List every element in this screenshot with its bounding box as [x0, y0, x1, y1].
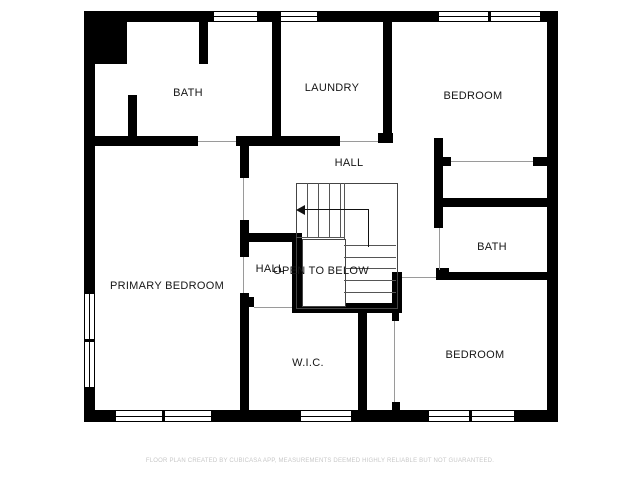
room-label-bath-2: BATH [477, 241, 507, 253]
wall-bath1-right-upper [199, 22, 208, 64]
door-line-laundry [340, 141, 378, 142]
stair-walk-line [303, 209, 368, 210]
door-line-primary-lower [243, 257, 244, 293]
wall-laundry-left [272, 22, 281, 146]
wall-closet-right [533, 157, 547, 166]
window-divider [488, 11, 491, 22]
room-label-primary-bedroom: PRIMARY BEDROOM [110, 280, 224, 292]
room-label-wic: W.I.C. [292, 357, 324, 369]
door-line-bedroom2 [402, 277, 436, 278]
room-label-laundry: LAUNDRY [305, 82, 359, 94]
window-divider [162, 410, 165, 422]
window [280, 11, 318, 22]
stair-tread [344, 257, 396, 258]
disclaimer-text: FLOOR PLAN CREATED BY CUBICASA APP, MEAS… [146, 458, 494, 464]
stair-tread [344, 280, 396, 281]
corner-block [84, 11, 127, 64]
room-label-bedroom-2: BEDROOM [446, 349, 505, 361]
stair-tread [329, 183, 330, 237]
wall-bath2-bottom [436, 272, 547, 280]
wall-bath1-south [84, 136, 198, 146]
stair-tread [340, 183, 341, 237]
stair-landing-edge [296, 237, 344, 238]
window-divider [469, 410, 472, 422]
wall-primary-branch [240, 233, 300, 242]
wall-wic-right [358, 305, 367, 417]
stair-tread [307, 183, 308, 237]
door-line-bath2 [439, 228, 440, 270]
window [300, 410, 352, 422]
wall-bath2-top [443, 198, 547, 207]
room-label-hall-upper: HALL [335, 157, 364, 169]
wall-bedroom2-jamb-bot [392, 402, 400, 412]
window-divider [84, 339, 95, 342]
door-line-bedroom1-closet [451, 161, 533, 162]
wall-hall-north [236, 136, 340, 146]
room-label-bath-1: BATH [173, 87, 203, 99]
wall-primary-seg2 [240, 293, 249, 412]
stair-tread [318, 183, 319, 237]
room-label-open-to-below: OPEN TO BELOW [273, 265, 369, 277]
stair-walk-line [368, 209, 369, 247]
room-label-bedroom-1: BEDROOM [444, 90, 503, 102]
wall-bath2-door-jamb [436, 268, 449, 280]
door-line-bedroom2-closet [394, 321, 395, 402]
wall-closet-jamb-left [443, 157, 451, 166]
floor-plan: BATH LAUNDRY BEDROOM HALL HALL OPEN TO B… [0, 0, 640, 480]
stair-direction-arrow-icon [296, 205, 305, 215]
wall-hall-north-stub [240, 136, 249, 178]
wall-laundry-right [383, 22, 392, 135]
stair-tread [344, 245, 396, 246]
wall-corridor-right [434, 138, 443, 228]
exterior-wall-right [547, 11, 558, 422]
door-line-bath1 [198, 141, 236, 142]
door-line-primary-upper [243, 178, 244, 220]
wall-bedroom2-jamb-top [392, 313, 399, 321]
wall-laundry-right-foot [378, 133, 393, 143]
door-line-wic-entry [254, 307, 292, 308]
wall-wic-door-jamb [249, 297, 254, 307]
stair-tread [344, 292, 396, 293]
window [213, 11, 258, 22]
